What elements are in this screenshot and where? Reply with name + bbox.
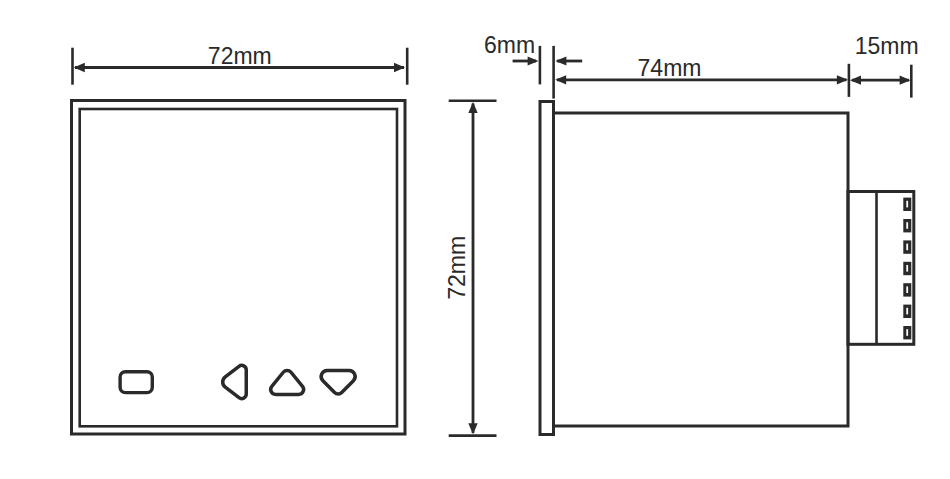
svg-text:74mm: 74mm bbox=[638, 55, 702, 81]
svg-text:72mm: 72mm bbox=[444, 236, 470, 300]
svg-text:6mm: 6mm bbox=[484, 32, 535, 58]
svg-text:15mm: 15mm bbox=[855, 33, 919, 59]
svg-text:72mm: 72mm bbox=[208, 43, 272, 69]
